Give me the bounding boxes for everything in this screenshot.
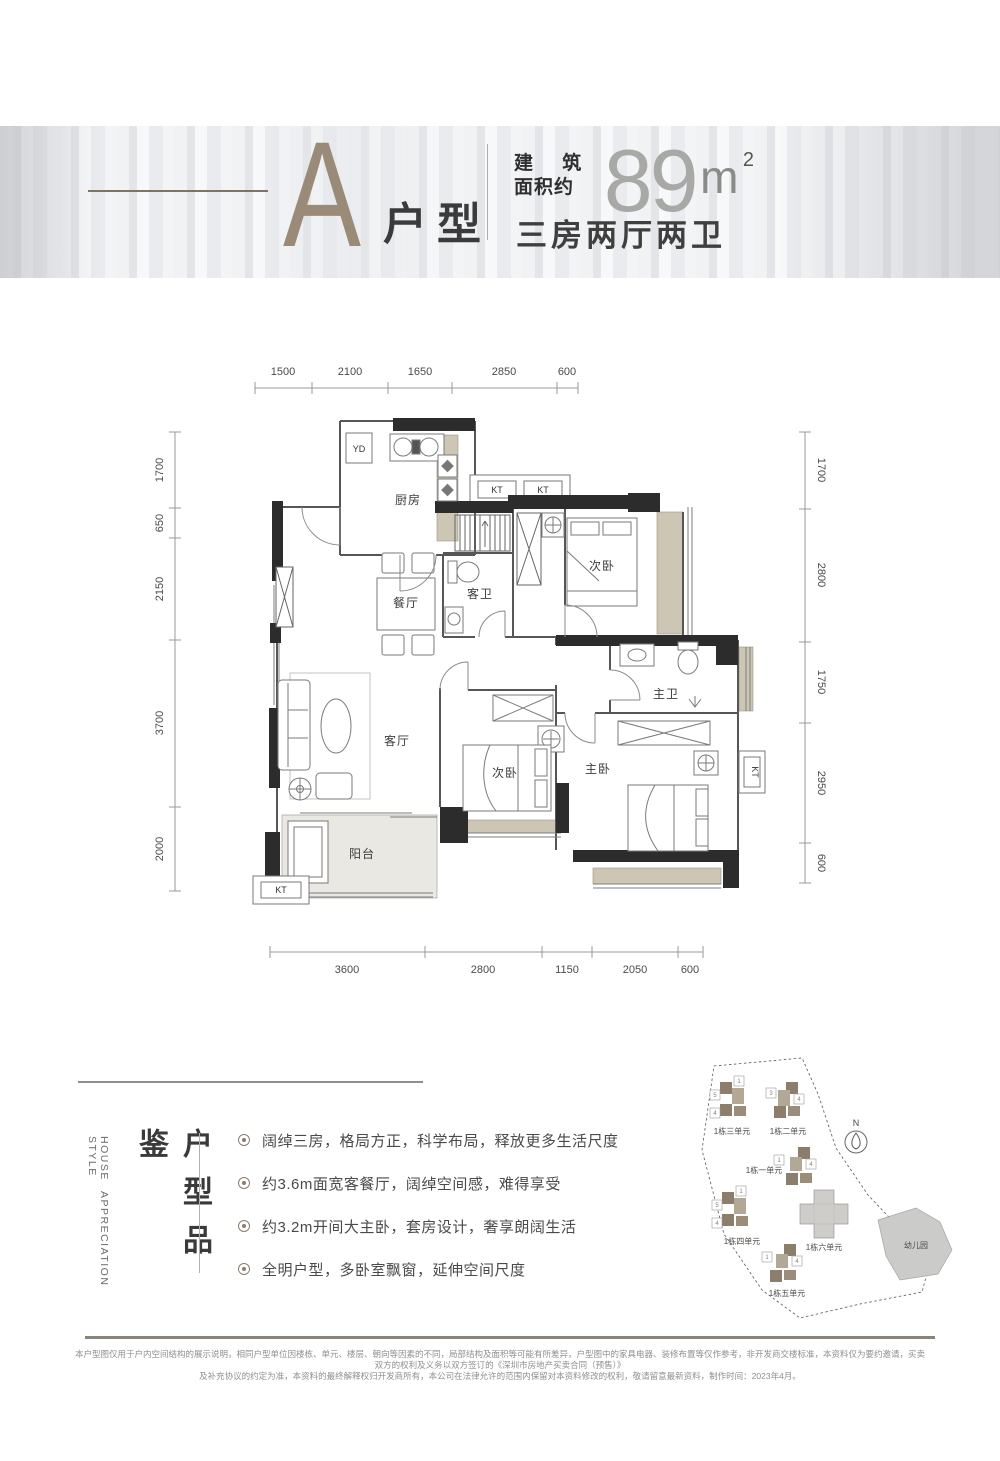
kitchen-label: 厨房: [395, 492, 421, 507]
svg-text:600: 600: [681, 964, 699, 976]
washer-icon: [694, 751, 718, 775]
svg-text:650: 650: [154, 514, 166, 532]
building-cluster: 1 4 1栋一单元: [746, 1147, 816, 1185]
bullet-icon: [238, 1263, 250, 1275]
bullet-icon: [238, 1220, 250, 1232]
svg-text:2850: 2850: [492, 366, 516, 378]
building-cluster: 1栋六单元: [800, 1190, 848, 1252]
area-label-line1: 建 筑: [514, 153, 593, 174]
feature-item: 全明户型，多卧室飘窗，延伸空间尺度: [238, 1259, 668, 1279]
svg-text:1500: 1500: [271, 366, 295, 378]
feature-text: 约3.2m开间大主卧，套房设计，奢享朗阔生活: [262, 1216, 576, 1237]
kindergarten-label: 幼儿园: [904, 1240, 928, 1250]
svg-text:2000: 2000: [154, 837, 166, 861]
guest-bath-label: 客卫: [467, 586, 493, 601]
footer-rule: [85, 1336, 935, 1339]
secondary-bedroom-label: 次卧: [589, 559, 615, 573]
bullet-icon: [238, 1134, 250, 1146]
svg-text:2800: 2800: [471, 964, 495, 976]
svg-text:600: 600: [558, 366, 576, 378]
kt-label: KT: [491, 485, 503, 495]
feature-item: 约3.6m面宽客餐厅，阔绰空间感，难得享受: [238, 1173, 668, 1193]
unit-type-letter: A: [283, 114, 361, 274]
sofa-icon: [278, 680, 310, 770]
balcony-cabinet-icon: [288, 821, 328, 883]
section-title-cn: 户型品鉴: [128, 1128, 216, 1308]
section-rule: [78, 1081, 423, 1083]
building-label: 1栋一单元: [746, 1165, 782, 1175]
toilet-icon: [678, 642, 698, 674]
kt-label: KT: [750, 766, 760, 778]
wardrobe-icon: [493, 695, 553, 721]
disclaimer-line1: 本户型图仅用于户内空间结构的展示说明，相同户型单位因楼栋、单元、楼层、朝向等因素…: [75, 1349, 925, 1371]
disclaimer-line2: 及补充协议的约定为准，本资料的最终解释权归开发商所有，本公司在法律允许的范围内保…: [75, 1371, 925, 1382]
feature-text: 约3.6m面宽客餐厅，阔绰空间感，难得享受: [262, 1173, 561, 1194]
area-value: 89: [604, 148, 696, 214]
bath-sink-icon: [620, 644, 654, 666]
svg-text:600: 600: [815, 854, 827, 872]
floor-lamp-icon: [289, 778, 311, 800]
building-cluster: 3 4 1栋二单元: [766, 1082, 806, 1136]
feature-item: 约3.2m开间大主卧，套房设计，奢享朗阔生活: [238, 1216, 668, 1236]
area-block: 建 筑 面积约 89 m 2: [514, 148, 754, 214]
feature-list: 阔绰三房，格局方正，科学布局，释放更多生活尺度 约3.6m面宽客餐厅，阔绰空间感…: [238, 1130, 668, 1302]
stairs: [455, 515, 510, 551]
svg-text:2050: 2050: [623, 964, 647, 976]
building-cluster: 1 4 1栋五单元: [762, 1244, 805, 1298]
area-unit: m: [700, 148, 738, 206]
compass-icon: N: [845, 1118, 867, 1153]
shower-icon: [689, 696, 701, 707]
area-label-line2: 面积约: [514, 177, 574, 198]
area-label: 建 筑 面积约: [514, 152, 593, 200]
yd-label: YD: [353, 444, 366, 454]
kt-label: KT: [275, 885, 287, 895]
svg-text:1650: 1650: [408, 366, 432, 378]
svg-text:3600: 3600: [335, 964, 359, 976]
floor-plan: 1500 2100 1650 2850 600 1700 650 2150 37…: [150, 355, 850, 1005]
master-bath-label: 主卫: [653, 687, 679, 701]
armchair-icon: [316, 773, 352, 799]
svg-text:2150: 2150: [154, 577, 166, 601]
wardrobe-icon: [618, 721, 710, 745]
layout-spec: 三房两厅两卫: [516, 210, 726, 255]
svg-text:2100: 2100: [338, 366, 362, 378]
area-unit-sup: 2: [743, 150, 754, 170]
living-label: 客厅: [384, 733, 410, 748]
building-label: 1栋六单元: [806, 1242, 842, 1252]
svg-text:2950: 2950: [815, 771, 827, 795]
svg-text:2800: 2800: [815, 563, 827, 587]
feature-item: 阔绰三房，格局方正，科学布局，释放更多生活尺度: [238, 1130, 668, 1150]
balcony-label: 阳台: [349, 846, 375, 861]
svg-text:3700: 3700: [154, 711, 166, 735]
decorative-line: [88, 190, 268, 192]
svg-text:1700: 1700: [815, 458, 827, 482]
section-title-en: HOUSE STYLE APPRECIATION: [86, 1136, 110, 1286]
section-title-en-line2: APPRECIATION: [86, 1191, 110, 1286]
building-label: 1栋四单元: [724, 1236, 760, 1246]
bed-icon: [628, 785, 708, 851]
header-banner: A 户型 建 筑 面积约 89 m 2 三房两厅两卫: [0, 126, 1000, 278]
unit-type-suffix: 户型: [383, 188, 491, 252]
svg-text:1750: 1750: [815, 670, 827, 694]
master-bedroom-label: 主卧: [585, 762, 611, 776]
section-divider: [199, 1133, 200, 1273]
washer-icon: [542, 513, 564, 537]
toilet-icon: [448, 561, 479, 583]
feature-text: 全明户型，多卧室飘窗，延伸空间尺度: [262, 1259, 526, 1280]
bullet-icon: [238, 1177, 250, 1189]
feature-text: 阔绰三房，格局方正，科学布局，释放更多生活尺度: [262, 1130, 619, 1151]
building-cluster: 5 1 4 1栋三单元: [710, 1076, 750, 1136]
secondary-bedroom-label: 次卧: [492, 766, 518, 780]
kt-label: KT: [537, 485, 549, 495]
svg-text:1700: 1700: [154, 458, 166, 482]
header-divider: [487, 144, 488, 240]
dining-label: 餐厅: [393, 595, 419, 610]
section-title-en-line1: HOUSE STYLE: [86, 1136, 110, 1188]
building-label: 1栋二单元: [770, 1126, 806, 1136]
coffee-table-icon: [321, 699, 351, 753]
floorplan-page: A 户型 建 筑 面积约 89 m 2 三房两厅两卫 1500 2100 165…: [0, 0, 1000, 1461]
stove-icon: [390, 434, 444, 461]
svg-text:N: N: [853, 1118, 860, 1128]
svg-text:1150: 1150: [555, 964, 579, 976]
bath-sink-icon: [445, 607, 463, 633]
disclaimer: 本户型图仅用于户内空间结构的展示说明，相同户型单位因楼栋、单元、楼层、朝向等因素…: [75, 1349, 925, 1382]
site-map: 5 1 4 1栋三单元 3 4 1栋二单元 1 4 1栋一单元: [690, 1052, 995, 1332]
building-label: 1栋三单元: [714, 1126, 750, 1136]
building-label: 1栋五单元: [769, 1288, 805, 1298]
kindergarten: 幼儿园: [878, 1208, 952, 1280]
